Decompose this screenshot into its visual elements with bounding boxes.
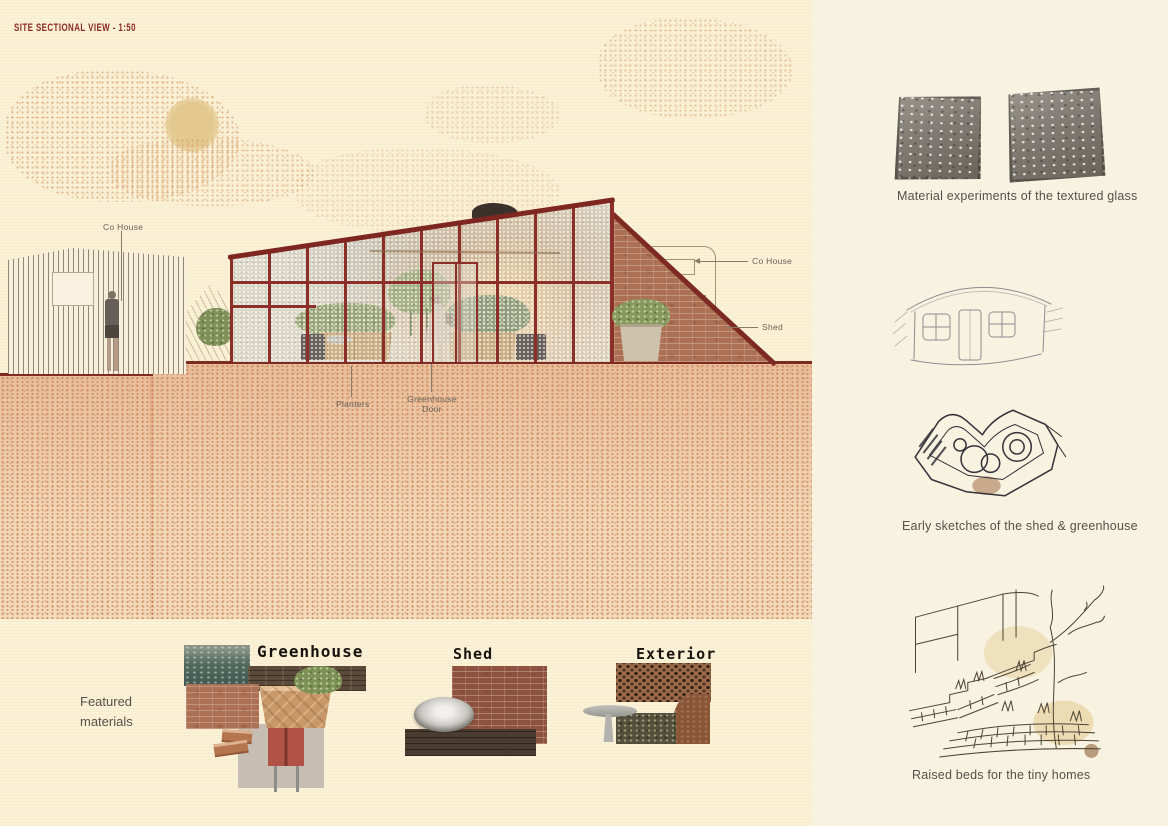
caption-sketches: Early sketches of the shed & greenhouse (902, 519, 1138, 533)
leader-line (121, 231, 122, 301)
material-section-exterior: Exterior (636, 645, 716, 663)
featured-materials-intro: Featured materials (80, 692, 133, 732)
glass-sample (895, 94, 984, 183)
mossy-stone-swatch (616, 713, 676, 744)
featured-line1: Featured (80, 692, 133, 712)
label-greenhouse-door: Greenhouse Door (407, 394, 457, 414)
material-section-shed: Shed (453, 645, 493, 663)
person-figure-left-shorts (105, 325, 119, 338)
cloud-stipple (598, 18, 793, 118)
frame-rail (230, 281, 614, 284)
ground-section (150, 361, 812, 619)
door-split-line (455, 264, 457, 364)
caption-glass-samples: Material experiments of the textured gla… (897, 189, 1137, 203)
presentation-board: SITE SECTIONAL VIEW - 1:50 (0, 0, 1168, 826)
planter-plant (294, 666, 342, 694)
shed-pencil-sketch (893, 262, 1063, 374)
shrub (196, 308, 234, 346)
raised-beds-sketch (897, 582, 1119, 768)
round-planter (616, 324, 666, 361)
red-painted-post-swatch (268, 726, 304, 766)
metal-basin-swatch (414, 697, 474, 732)
shed-wood-swatch (405, 729, 536, 756)
frame-edge (610, 198, 614, 362)
leader-line (351, 366, 352, 397)
metal-leg (296, 766, 299, 792)
label-shed: Shed (762, 322, 783, 332)
featured-line2: materials (80, 712, 133, 732)
label-planters: Planters (336, 399, 370, 409)
caption-raised-beds: Raised beds for the tiny homes (912, 768, 1090, 782)
greenhouse-door (432, 262, 478, 366)
frame-rail (230, 305, 316, 308)
label-co-house-left: Co House (103, 222, 143, 232)
leader-line (431, 364, 432, 392)
rust-brick-swatch (673, 694, 710, 744)
leader-line (726, 327, 758, 328)
cloud-stipple (425, 85, 560, 143)
cloud-stipple (110, 138, 315, 206)
material-section-greenhouse: Greenhouse (257, 642, 363, 661)
person-figure-left-leg (107, 338, 111, 371)
label-co-house-right: Co House (752, 256, 792, 266)
textured-glass-swatch (184, 645, 250, 686)
co-house-window (52, 272, 94, 306)
leader-line (700, 261, 748, 262)
ground-section-left (0, 373, 153, 619)
person-figure-left-leg (114, 338, 118, 371)
person-figure-left-torso (105, 299, 119, 326)
brick-swatch (186, 684, 259, 729)
plan-ink-sketch (903, 396, 1071, 508)
metal-leg (274, 766, 277, 792)
page-title: SITE SECTIONAL VIEW - 1:50 (14, 22, 136, 34)
glass-sample (1006, 87, 1105, 182)
co-house-building-left (8, 248, 186, 374)
person-figure-left (108, 291, 116, 299)
